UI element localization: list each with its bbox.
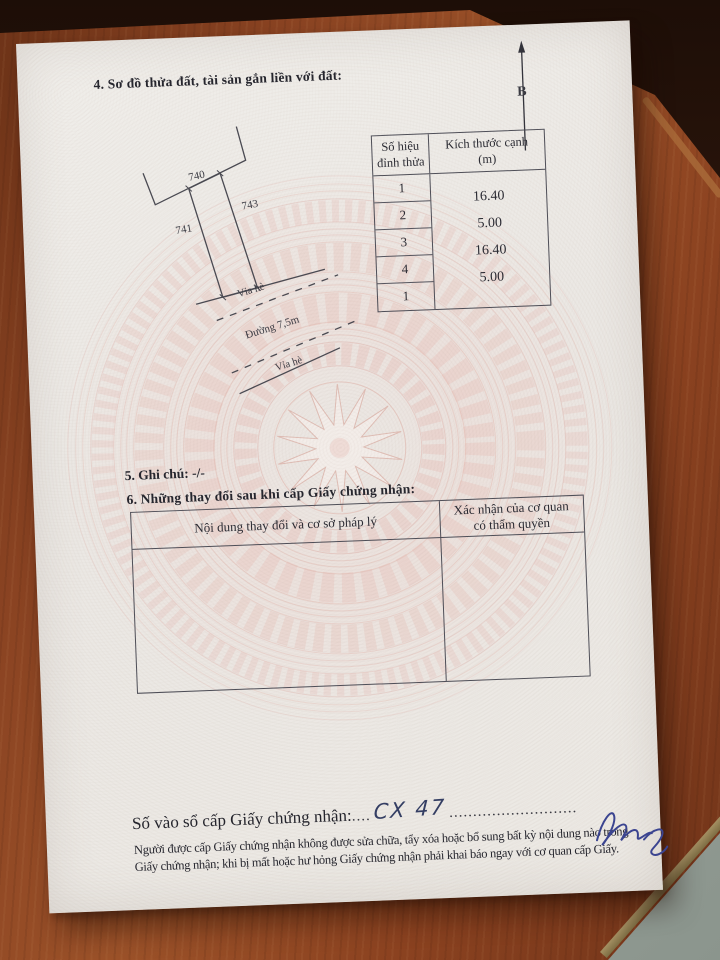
col2-header-line1: Kích thước cạnh bbox=[445, 134, 528, 151]
section5-label: 5. Ghi chú: bbox=[124, 466, 189, 483]
parcel-outline bbox=[188, 172, 258, 298]
registration-number-handwritten: CX 47 bbox=[373, 795, 446, 824]
photo-scene: 4. Sơ đồ thửa đất, tài sản gắn liền với … bbox=[0, 0, 720, 960]
section4-title: 4. Sơ đồ thửa đất, tài sản gắn liền với … bbox=[93, 68, 342, 94]
changes-table-col1-header: Nội dung thay đổi và cơ sở pháp lý bbox=[131, 501, 440, 549]
signature-ink bbox=[590, 797, 672, 862]
vertex-cell: 1 bbox=[373, 174, 430, 203]
sidewalk-line-bottom bbox=[238, 348, 342, 394]
changes-table-col2-header: Xác nhận của cơ quan có thẩm quyền bbox=[439, 496, 584, 538]
registration-label: Số vào sổ cấp Giấy chứng nhận: bbox=[132, 806, 352, 833]
north-label: B bbox=[517, 84, 527, 99]
north-arrow-head bbox=[518, 40, 525, 52]
col2-header-line2: (m) bbox=[478, 151, 497, 166]
dimension-table-col2-header: Kích thước cạnh (m) bbox=[429, 130, 545, 174]
edge-length-column: 16.40 5.00 16.40 5.00 bbox=[430, 170, 550, 309]
road-label: Đường 7,5m bbox=[244, 313, 301, 341]
neighbor-boundary-line bbox=[141, 126, 247, 205]
edge-length-value: 5.00 bbox=[434, 268, 550, 288]
right-parcel-number: 743 bbox=[241, 198, 260, 213]
leader-dots: .... bbox=[351, 808, 371, 825]
parcel-diagram: 740 741 743 Vỉa hè Đường 7,5m Vỉa hè bbox=[119, 110, 390, 420]
edge-length-value: 16.40 bbox=[433, 241, 549, 261]
sidewalk-label-top: Vỉa hè bbox=[236, 281, 266, 300]
left-parcel-number: 741 bbox=[175, 222, 193, 237]
vertex-cell: 3 bbox=[375, 228, 432, 257]
vertex-cell: 1 bbox=[378, 282, 435, 311]
section5-value: -/- bbox=[192, 465, 205, 480]
col1-header-line2: đỉnh thửa bbox=[377, 154, 425, 170]
vertex-number-column: 1 2 3 4 1 bbox=[373, 174, 435, 311]
leader-dots: ........................... bbox=[449, 800, 578, 821]
col1-header-line1: Số hiệu bbox=[381, 139, 419, 154]
dimension-table-col1-header: Số hiệu đỉnh thửa bbox=[372, 134, 430, 175]
vertex-cell: 2 bbox=[374, 201, 431, 230]
certificate-page: 4. Sơ đồ thửa đất, tài sản gắn liền với … bbox=[16, 20, 663, 913]
changes-table: Nội dung thay đổi và cơ sở pháp lý Xác n… bbox=[130, 495, 591, 694]
edge-length-value: 5.00 bbox=[432, 214, 548, 234]
dimension-table: Số hiệu đỉnh thửa Kích thước cạnh (m) 1 … bbox=[371, 129, 552, 313]
edge-length-value: 16.40 bbox=[431, 187, 547, 207]
vertex-cell: 4 bbox=[376, 255, 433, 284]
